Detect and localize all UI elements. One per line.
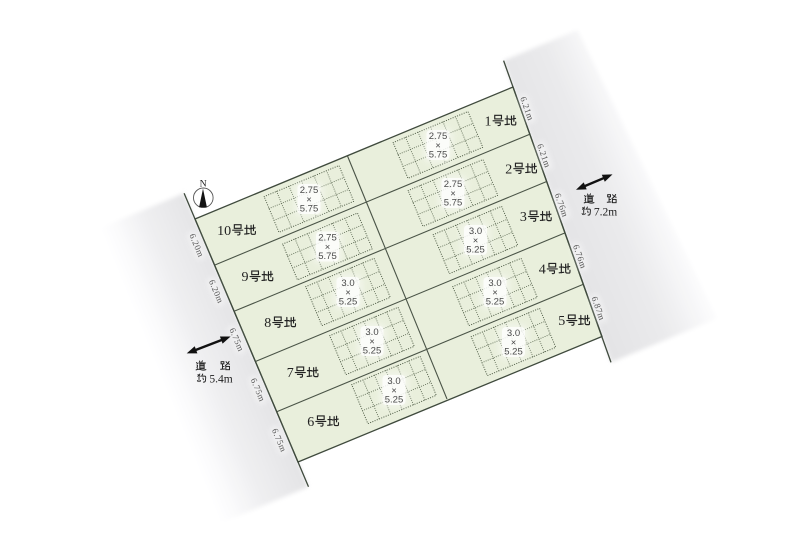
svg-text:N: N bbox=[200, 179, 207, 190]
svg-text:9: 9 bbox=[242, 270, 249, 285]
svg-text:7.2m: 7.2m bbox=[594, 206, 617, 218]
svg-text:5.25: 5.25 bbox=[504, 347, 523, 358]
svg-text:2: 2 bbox=[505, 162, 512, 177]
svg-text:5.75: 5.75 bbox=[444, 198, 463, 209]
svg-text:5.25: 5.25 bbox=[486, 297, 505, 308]
svg-text:7: 7 bbox=[287, 366, 294, 381]
svg-text:5.75: 5.75 bbox=[429, 150, 448, 161]
svg-text:5.25: 5.25 bbox=[385, 395, 404, 406]
svg-text:5.4m: 5.4m bbox=[209, 373, 232, 385]
svg-text:5.75: 5.75 bbox=[300, 204, 319, 215]
svg-text:10: 10 bbox=[217, 224, 231, 239]
svg-text:5: 5 bbox=[558, 314, 565, 329]
svg-text:5.25: 5.25 bbox=[363, 346, 382, 357]
svg-text:3: 3 bbox=[520, 210, 527, 225]
svg-text:5.25: 5.25 bbox=[466, 245, 485, 256]
svg-text:5.25: 5.25 bbox=[339, 297, 358, 308]
svg-text:8: 8 bbox=[264, 316, 271, 331]
svg-text:1: 1 bbox=[485, 114, 492, 129]
svg-text:6: 6 bbox=[307, 415, 314, 430]
svg-text:5.75: 5.75 bbox=[318, 251, 337, 262]
svg-text:4: 4 bbox=[539, 263, 546, 278]
